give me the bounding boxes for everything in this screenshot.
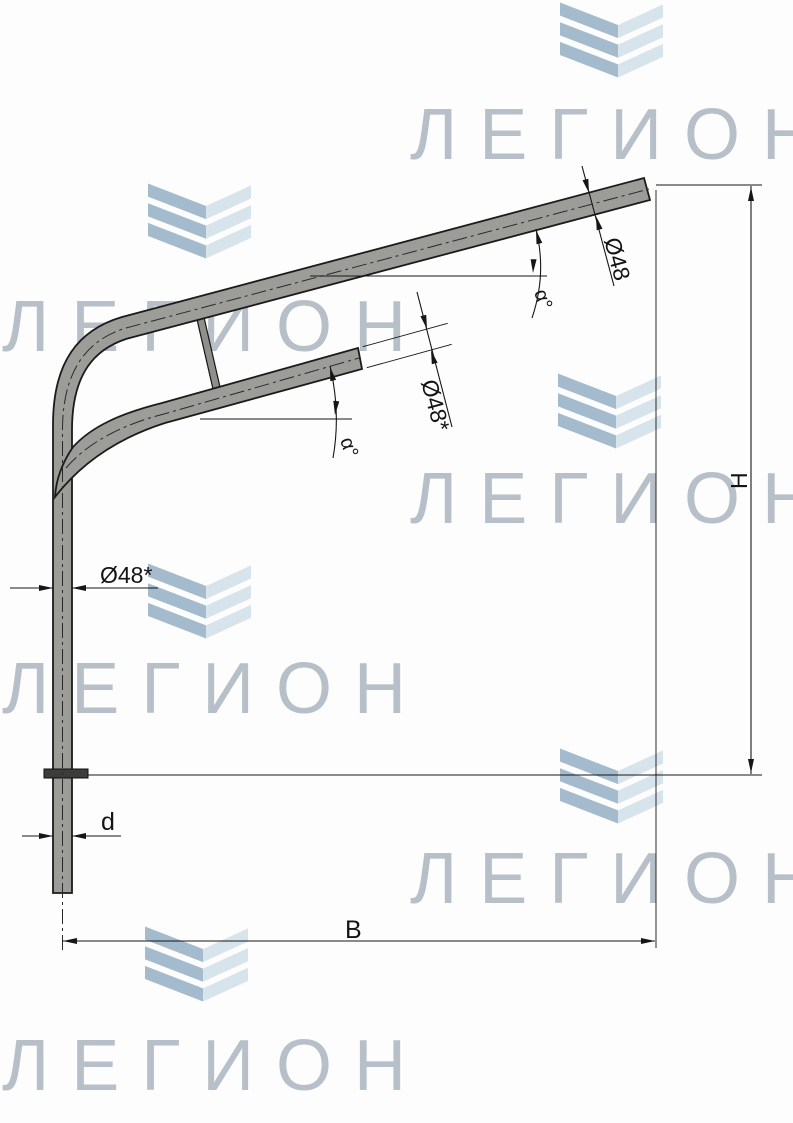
dim-label-lower-angle: α° [335, 435, 362, 460]
dim-post-diameter: Ø48* [10, 562, 158, 591]
cross-strut [196, 313, 220, 389]
dim-label-upper-diameter: Ø48 [599, 235, 635, 284]
dim-label-upper-angle: α° [529, 287, 556, 312]
dim-height: H [88, 185, 762, 775]
dim-lower-arm-diameter: Ø48* [363, 292, 455, 434]
drawing-page: ЛЕГИОН ЛЕГИОН ЛЕГИОН ЛЕГИОН ЛЕГИОН ЛЕГИО… [0, 0, 793, 1123]
dim-label-span: B [345, 916, 362, 944]
dim-label-height: H [726, 472, 752, 489]
bracket-technical-drawing: Ø48 α° Ø48* α° [0, 0, 793, 1123]
dim-label-base-diameter: d [101, 808, 115, 836]
dim-label-lower-diameter: Ø48* [416, 377, 455, 434]
post-and-upper-arm-pipe [53, 178, 650, 893]
mounting-flange [44, 769, 88, 778]
dim-label-post-diameter: Ø48* [100, 562, 152, 588]
